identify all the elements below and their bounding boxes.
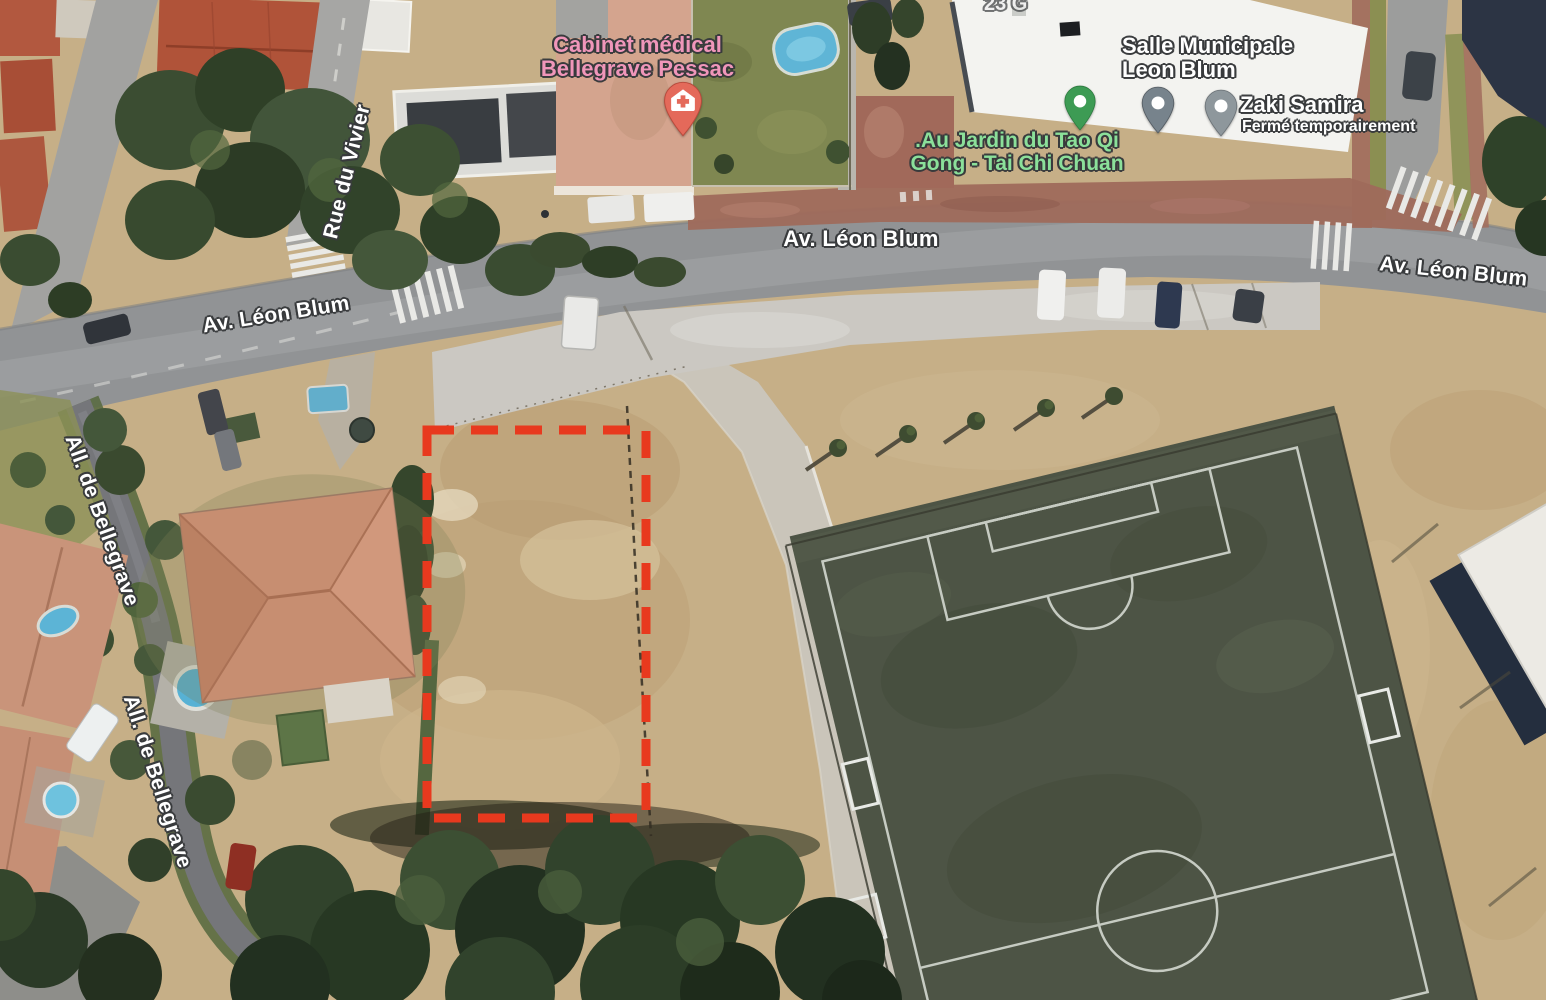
street-label-av-leon-blum-center: Av. Léon Blum xyxy=(772,227,950,251)
poi-label-line: Cabinet médical xyxy=(540,33,735,57)
poi-label-tao-qi-gong[interactable]: .Au Jardin du Tao Qi Gong - Tai Chi Chua… xyxy=(903,129,1131,175)
poi-label-cabinet-medical[interactable]: Cabinet médical Bellegrave Pessac xyxy=(540,33,735,81)
parked-car-white-1 xyxy=(1037,269,1067,320)
poi-label-zaki-status: Fermé temporairement xyxy=(1242,118,1415,136)
poi-label-salle-municipale[interactable]: Salle Municipale Leon Blum xyxy=(1122,34,1293,82)
green-shed xyxy=(277,710,329,765)
partial-label-top: 23 G xyxy=(984,0,1027,15)
car-top-right-street xyxy=(1402,51,1437,102)
poi-label-line: .Au Jardin du Tao Qi xyxy=(903,129,1131,152)
poi-label-line: Salle Municipale xyxy=(1122,34,1293,58)
parked-car-dark xyxy=(1232,288,1265,324)
satellite-map-viewport[interactable]: Av. Léon Blum Av. Léon Blum Av. Léon Blu… xyxy=(0,0,1546,1000)
parked-car-navy xyxy=(1154,281,1182,329)
round-pool-2 xyxy=(44,783,78,817)
marker-salle-municipale-icon[interactable] xyxy=(1139,86,1177,134)
parked-car-white-2 xyxy=(1097,267,1127,318)
poi-label-line: Bellegrave Pessac xyxy=(540,57,735,81)
marker-cabinet-medical-icon[interactable] xyxy=(662,81,704,137)
white-truck-1 xyxy=(587,194,635,223)
marker-tao-qi-gong-icon[interactable] xyxy=(1062,85,1098,131)
white-truck-2 xyxy=(643,192,694,223)
satellite-imagery xyxy=(0,0,1546,1000)
marker-zaki-samira-icon[interactable] xyxy=(1202,89,1240,137)
poi-label-line: Leon Blum xyxy=(1122,58,1293,82)
poi-label-line: Gong - Tai Chi Chuan xyxy=(903,152,1131,175)
poi-label-zaki-samira[interactable]: Zaki Samira xyxy=(1240,93,1364,117)
white-van xyxy=(561,296,599,350)
patio xyxy=(323,678,393,724)
